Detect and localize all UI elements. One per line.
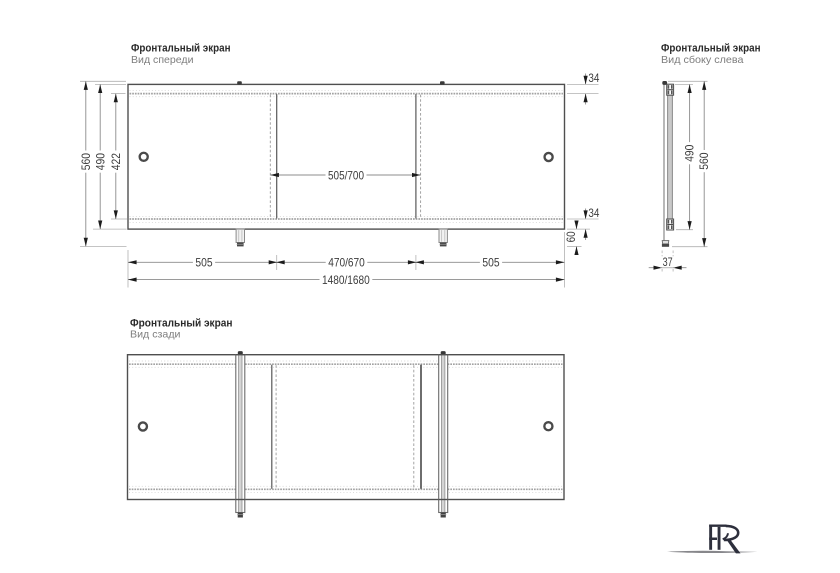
svg-text:Вид сбоку слева: Вид сбоку слева (661, 54, 744, 66)
svg-text:1480/1680: 1480/1680 (322, 273, 370, 287)
svg-text:422: 422 (109, 153, 123, 170)
svg-text:Вид сзади: Вид сзади (130, 329, 181, 341)
svg-text:60: 60 (564, 231, 578, 242)
svg-text:470/670: 470/670 (328, 256, 365, 270)
svg-text:505/700: 505/700 (328, 168, 364, 182)
svg-text:Фронтальный экран: Фронтальный экран (131, 43, 231, 55)
svg-text:505: 505 (195, 256, 212, 270)
svg-text:560: 560 (79, 153, 93, 170)
svg-text:505: 505 (482, 256, 499, 270)
svg-text:37: 37 (663, 255, 673, 269)
svg-text:490: 490 (93, 153, 107, 170)
svg-text:Фронтальный экран: Фронтальный экран (661, 43, 761, 55)
svg-text:560: 560 (697, 152, 711, 169)
svg-text:490: 490 (683, 144, 697, 161)
svg-text:34: 34 (588, 206, 599, 220)
svg-text:34: 34 (588, 71, 599, 85)
svg-text:Вид спереди: Вид спереди (131, 54, 194, 66)
svg-text:Фронтальный экран: Фронтальный экран (130, 317, 233, 329)
